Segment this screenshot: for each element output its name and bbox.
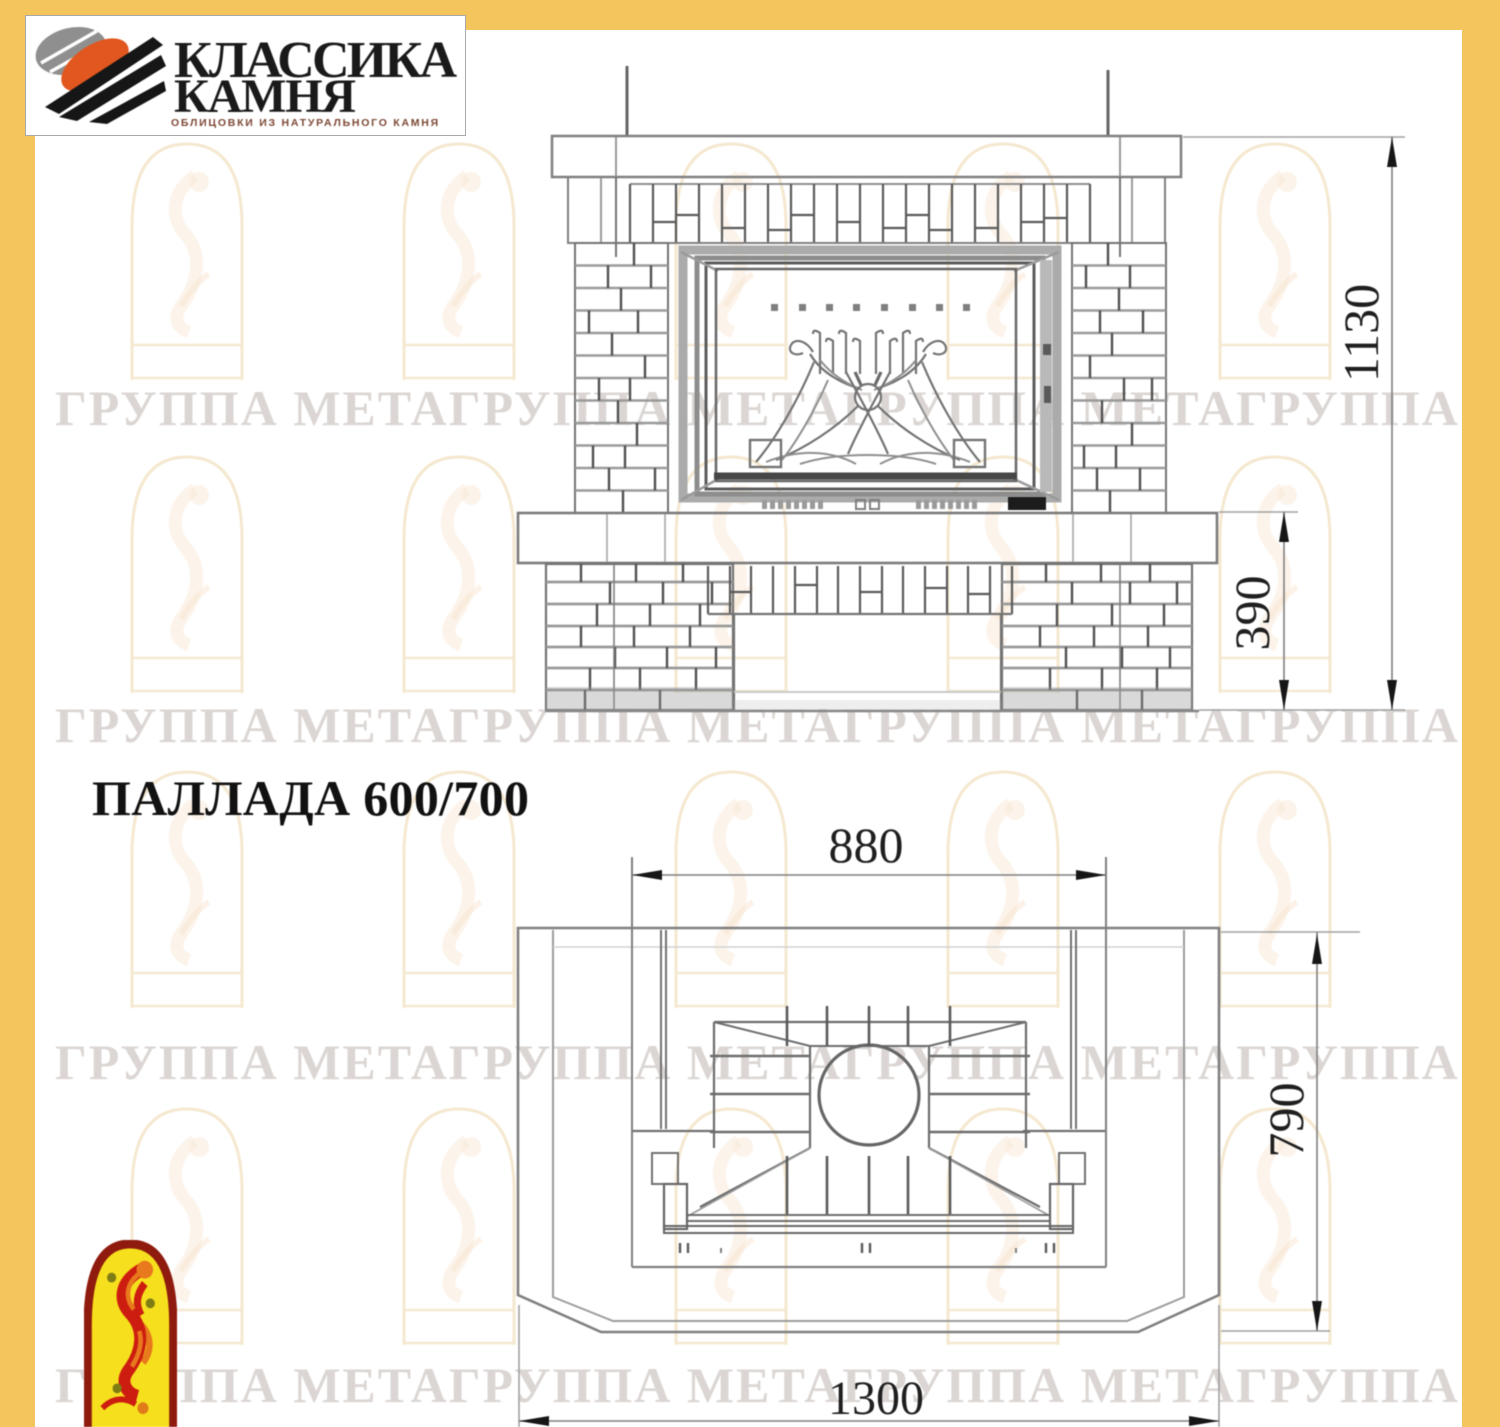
svg-text:390: 390 [1224, 576, 1280, 651]
svg-text:1130: 1130 [1333, 284, 1389, 382]
svg-text:790: 790 [1258, 1083, 1314, 1158]
svg-text:880: 880 [829, 817, 904, 873]
svg-text:ГРУППА МЕТАГРУППА МЕТАГРУППА М: ГРУППА МЕТАГРУППА МЕТАГРУППА МЕТАГРУППА … [55, 1034, 1500, 1090]
svg-text:ГРУППА МЕТАГРУППА МЕТАГРУППА М: ГРУППА МЕТАГРУППА МЕТАГРУППА МЕТАГРУППА … [55, 1357, 1500, 1413]
svg-text:КАМНЯ: КАМНЯ [174, 70, 360, 123]
svg-text:ОБЛИЦОВКИ ИЗ НАТУРАЛЬНОГО КАМН: ОБЛИЦОВКИ ИЗ НАТУРАЛЬНОГО КАМНЯ [171, 117, 439, 129]
svg-text:1300: 1300 [828, 1372, 924, 1425]
svg-text:ПАЛЛАДА 600/700: ПАЛЛАДА 600/700 [92, 770, 529, 826]
svg-text:ГРУППА МЕТАГРУППА МЕТАГРУППА М: ГРУППА МЕТАГРУППА МЕТАГРУППА МЕТАГРУППА … [55, 380, 1500, 436]
